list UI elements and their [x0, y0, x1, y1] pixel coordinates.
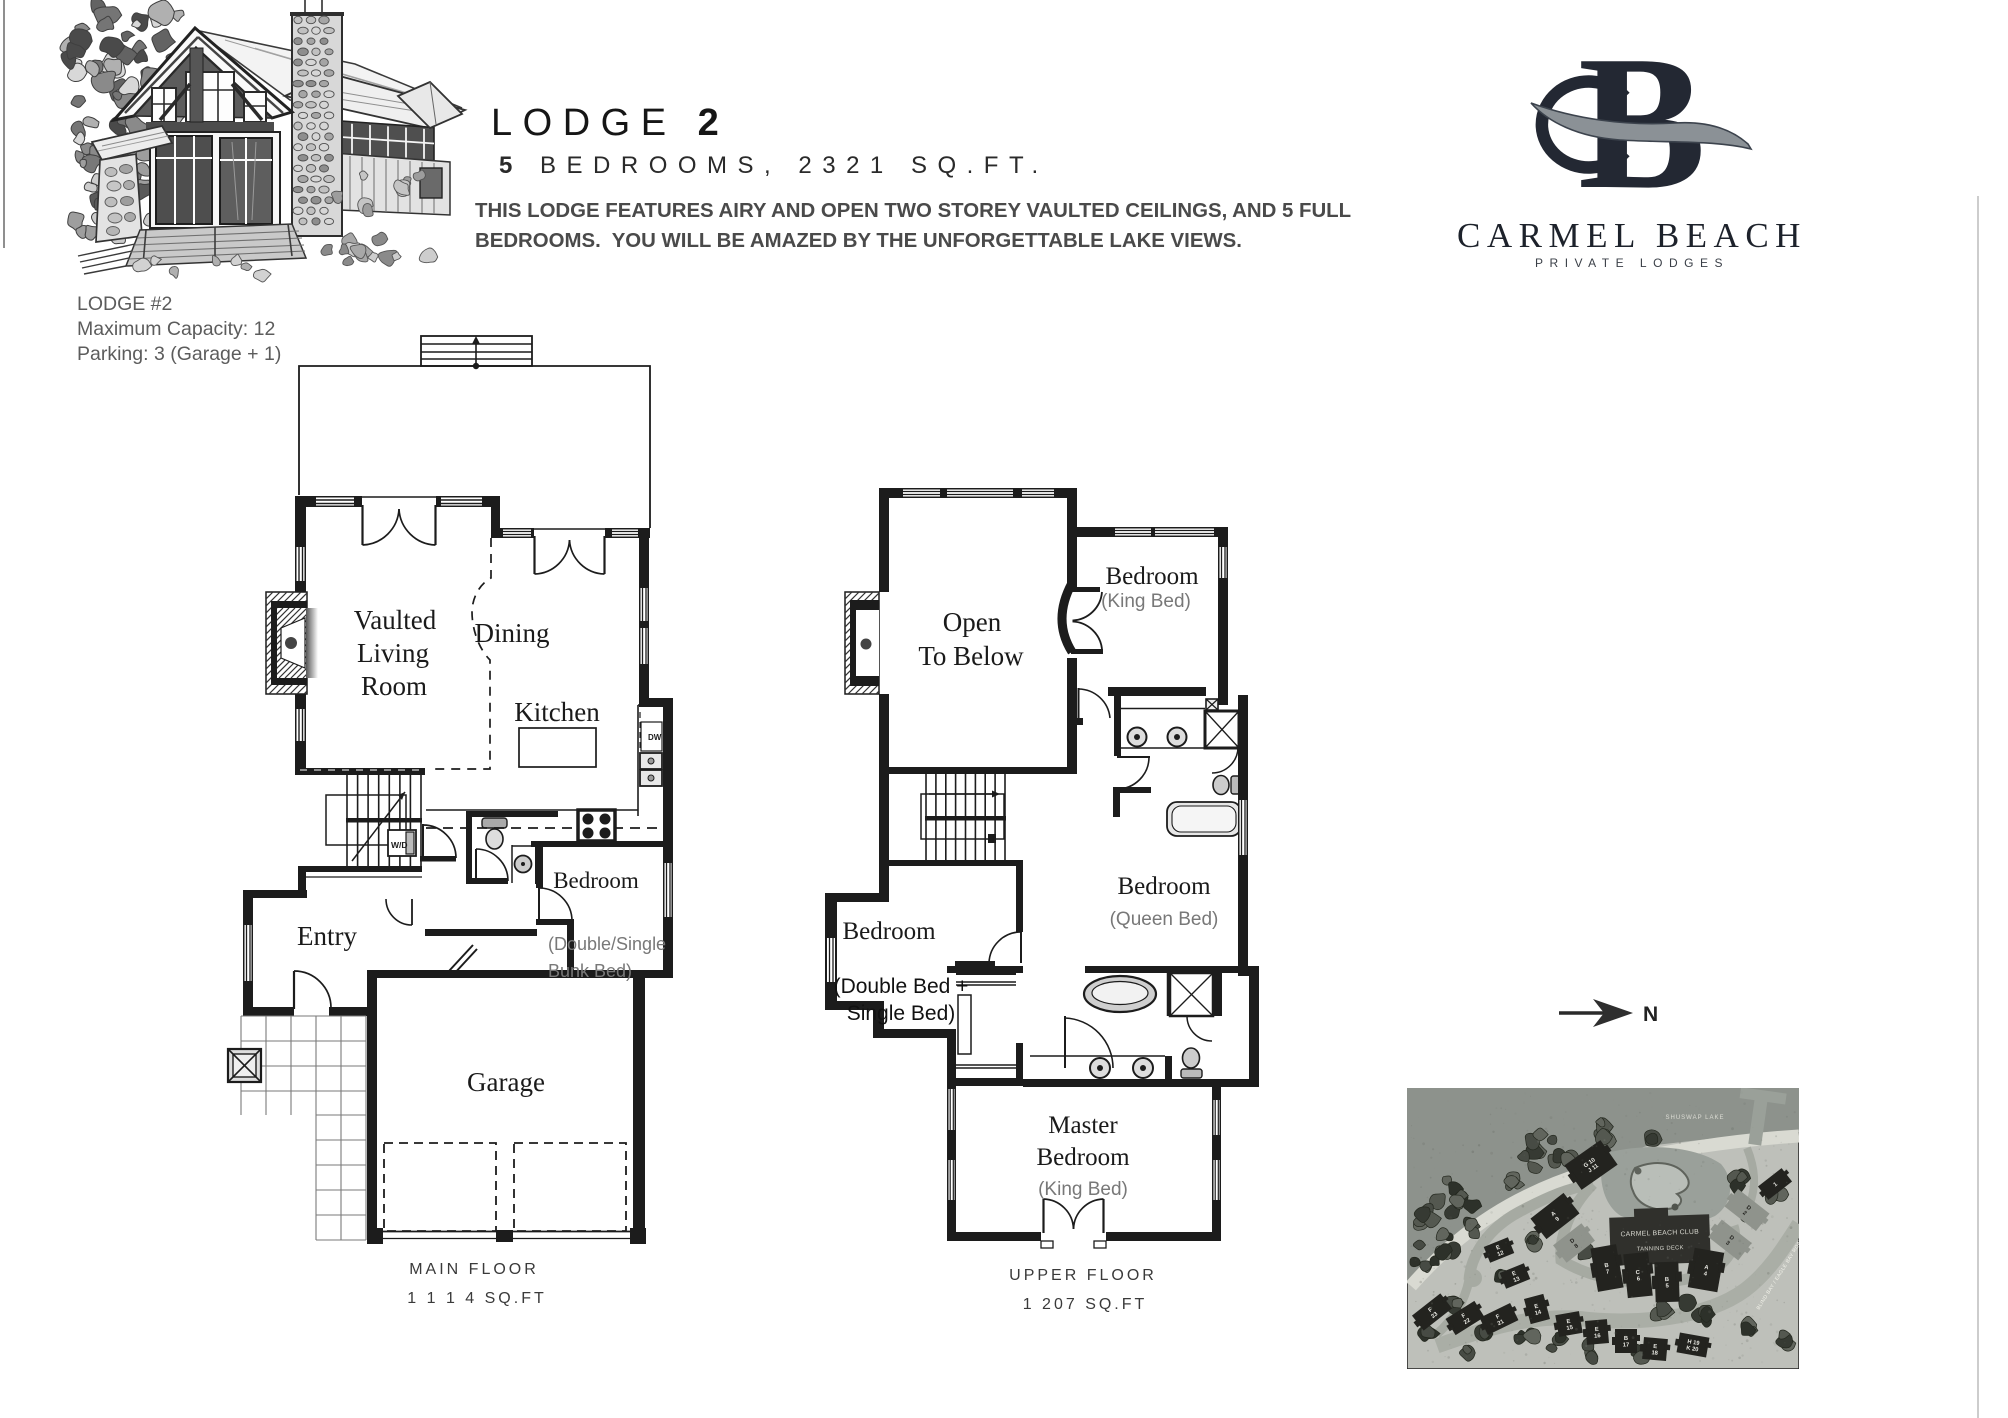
- svg-text:SHUSWAP LAKE: SHUSWAP LAKE: [1665, 1115, 1724, 1121]
- svg-text:17: 17: [1623, 1343, 1629, 1349]
- svg-text:E: E: [1595, 1327, 1600, 1333]
- svg-text:B: B: [1665, 1277, 1669, 1283]
- svg-text:B: B: [1624, 1336, 1628, 1342]
- svg-text:N: N: [1643, 1003, 1658, 1026]
- svg-text:E: E: [1653, 1344, 1658, 1350]
